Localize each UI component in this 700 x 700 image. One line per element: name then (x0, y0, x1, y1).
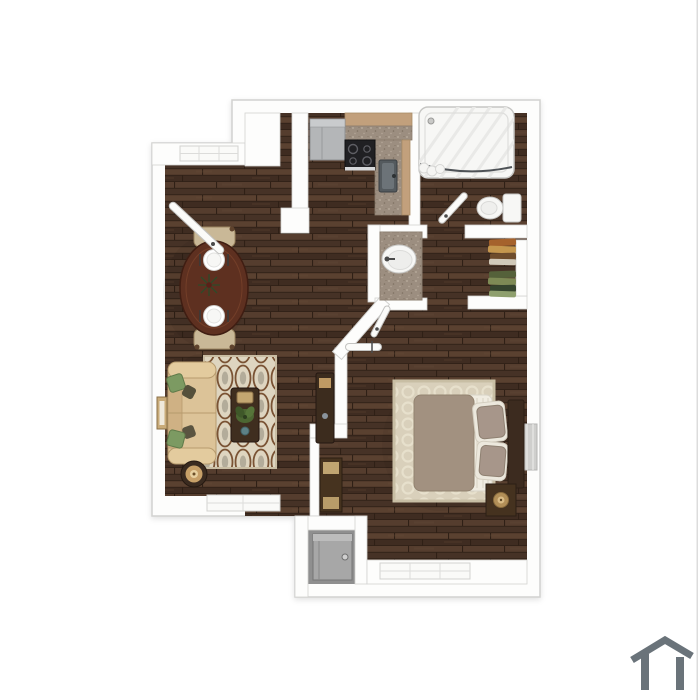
media-console (316, 373, 334, 443)
green-throw-pillow (166, 429, 185, 448)
image-edge-line (697, 0, 699, 700)
headboard (508, 400, 524, 488)
vase (241, 427, 249, 435)
tray (237, 392, 253, 403)
bed-pillow (476, 405, 505, 440)
wall-segment (465, 225, 527, 238)
wall-art (157, 397, 167, 429)
wall-segment (245, 113, 280, 166)
window-bedroom-right (523, 424, 537, 470)
floorplan-svg (0, 0, 700, 700)
house-outline-icon (632, 640, 692, 690)
side-table-lamp (181, 461, 207, 487)
window-top-left (180, 146, 238, 161)
window-living-bottom (207, 495, 280, 511)
bed-duvet (414, 395, 474, 491)
sofa (166, 362, 216, 464)
vanity (380, 232, 422, 300)
wall-segment (310, 438, 319, 516)
closet-shelf (516, 240, 527, 296)
coffee-table (231, 388, 259, 442)
floorplan-image (0, 0, 700, 700)
window-bedroom-bottom (380, 563, 470, 579)
wall-segment (335, 348, 347, 430)
tub-faucet (428, 118, 434, 124)
water-heater (313, 534, 352, 580)
centerpiece-plant (198, 274, 220, 296)
wall-column (281, 208, 309, 233)
refrigerator (310, 119, 345, 160)
stove (345, 140, 375, 171)
tall-cabinet (320, 458, 342, 512)
kitchen-counter-granite (345, 126, 412, 140)
wall-segment (468, 296, 527, 309)
wall-segment (368, 225, 380, 302)
bed-pillow (479, 445, 507, 477)
nightstand (486, 484, 516, 516)
kitchen-sink (379, 160, 397, 192)
wall-segment (295, 516, 308, 597)
kitchen-counter (345, 113, 412, 126)
wall-segment (292, 113, 308, 210)
wall-segment (355, 516, 367, 584)
kitchen-counter (402, 140, 410, 215)
